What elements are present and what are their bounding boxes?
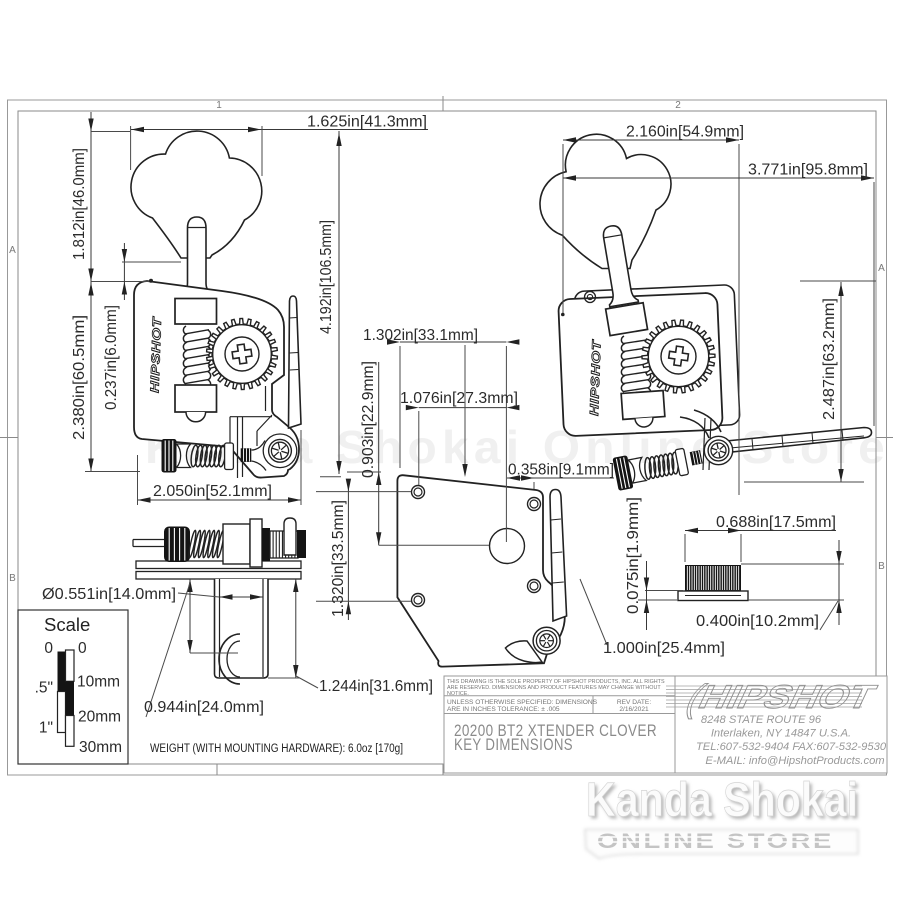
- svg-text:0: 0: [44, 640, 53, 657]
- svg-text:0: 0: [78, 640, 87, 657]
- svg-text:HIPSHOT: HIPSHOT: [148, 315, 165, 393]
- svg-text:REV DATE:: REV DATE:: [617, 699, 651, 706]
- svg-text:Kanda Shokai: Kanda Shokai: [586, 774, 858, 827]
- svg-text:1: 1: [216, 100, 222, 111]
- svg-text:1.812in[46.0mm]: 1.812in[46.0mm]: [71, 148, 88, 260]
- svg-text:3.771in[95.8mm]: 3.771in[95.8mm]: [748, 162, 868, 179]
- svg-text:KEY DIMENSIONS: KEY DIMENSIONS: [454, 735, 573, 754]
- svg-text:Interlaken, NY 14847 U.S.A.: Interlaken, NY 14847 U.S.A.: [711, 728, 851, 740]
- svg-text:B: B: [9, 573, 16, 584]
- svg-text:1.302in[33.1mm]: 1.302in[33.1mm]: [363, 327, 478, 344]
- svg-text:30mm: 30mm: [79, 739, 122, 756]
- svg-text:B: B: [878, 561, 885, 572]
- svg-text:2.380in[60.5mm]: 2.380in[60.5mm]: [71, 315, 88, 440]
- svg-text:2/16/2021: 2/16/2021: [619, 706, 649, 713]
- svg-text:WEIGHT (WITH MOUNTING HARDWARE: WEIGHT (WITH MOUNTING HARDWARE): 6.0oz […: [150, 741, 403, 755]
- svg-text:0.237in[6.0mm]: 0.237in[6.0mm]: [103, 305, 120, 410]
- svg-text:0.358in[9.1mm]: 0.358in[9.1mm]: [508, 462, 614, 479]
- svg-text:1": 1": [39, 720, 53, 737]
- svg-text:.5": .5": [35, 680, 53, 697]
- svg-text:HIPSHOT: HIPSHOT: [587, 338, 604, 416]
- svg-text:ARE RESERVED. DIMENSIONS AND P: ARE RESERVED. DIMENSIONS AND PRODUCT FEA…: [447, 685, 661, 691]
- svg-text:2.487in[63.2mm]: 2.487in[63.2mm]: [821, 298, 838, 420]
- svg-text:0.944in[24.0mm]: 0.944in[24.0mm]: [144, 699, 264, 716]
- svg-text:10mm: 10mm: [77, 674, 120, 691]
- svg-text:TEL:607-532-9404 FAX:607-532-9: TEL:607-532-9404 FAX:607-532-9530: [696, 741, 887, 753]
- svg-text:1.320in[33.5mm]: 1.320in[33.5mm]: [330, 500, 347, 617]
- svg-text:0.903in[22.9mm]: 0.903in[22.9mm]: [360, 361, 377, 478]
- svg-text:1.244in[31.6mm]: 1.244in[31.6mm]: [319, 678, 433, 695]
- svg-text:0.075in[1.9mm]: 0.075in[1.9mm]: [625, 497, 642, 614]
- svg-text:NOTICE.: NOTICE.: [447, 691, 469, 697]
- svg-text:1.625in[41.3mm]: 1.625in[41.3mm]: [307, 114, 427, 131]
- svg-text:20mm: 20mm: [78, 709, 121, 726]
- svg-text:E-MAIL: info@HipshotProducts.c: E-MAIL: info@HipshotProducts.com: [705, 755, 884, 767]
- svg-text:UNLESS OTHERWISE SPECIFIED: DI: UNLESS OTHERWISE SPECIFIED: DIMENSIONS: [447, 699, 598, 706]
- svg-text:Scale: Scale: [44, 614, 90, 635]
- svg-text:1.000in[25.4mm]: 1.000in[25.4mm]: [603, 640, 725, 657]
- svg-text:2.050in[52.1mm]: 2.050in[52.1mm]: [153, 483, 272, 500]
- svg-text:0.688in[17.5mm]: 0.688in[17.5mm]: [716, 514, 836, 531]
- svg-text:2.160in[54.9mm]: 2.160in[54.9mm]: [626, 124, 744, 141]
- svg-text:0.400in[10.2mm]: 0.400in[10.2mm]: [696, 613, 819, 630]
- svg-text:A: A: [878, 263, 885, 274]
- svg-text:2: 2: [675, 100, 681, 111]
- svg-text:ARE IN INCHES TOLERANCE: ± .00: ARE IN INCHES TOLERANCE: ± .005: [447, 706, 560, 713]
- svg-text:Ø0.551in[14.0mm]: Ø0.551in[14.0mm]: [42, 586, 176, 603]
- svg-text:HIPSHOT: HIPSHOT: [692, 680, 881, 716]
- svg-text:4.192in[106.5mm]: 4.192in[106.5mm]: [318, 220, 335, 334]
- svg-text:8248 STATE ROUTE 96: 8248 STATE ROUTE 96: [701, 714, 822, 726]
- svg-text:A: A: [9, 245, 16, 256]
- svg-text:1.076in[27.3mm]: 1.076in[27.3mm]: [400, 390, 518, 407]
